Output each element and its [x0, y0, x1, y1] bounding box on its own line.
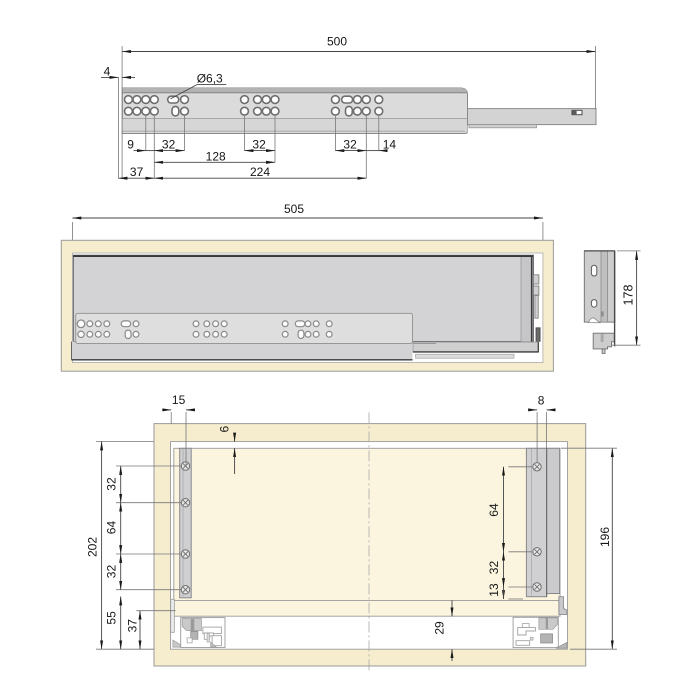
- svg-text:32: 32: [252, 138, 266, 152]
- svg-text:32: 32: [487, 561, 501, 575]
- svg-text:4: 4: [104, 64, 111, 78]
- svg-text:64: 64: [105, 521, 119, 535]
- svg-text:9: 9: [127, 138, 134, 152]
- svg-text:37: 37: [126, 619, 140, 633]
- svg-text:32: 32: [162, 138, 176, 152]
- svg-text:178: 178: [622, 285, 636, 306]
- svg-text:32: 32: [105, 477, 119, 491]
- svg-text:196: 196: [598, 527, 612, 547]
- svg-text:500: 500: [327, 34, 347, 48]
- svg-text:15: 15: [172, 393, 186, 407]
- svg-text:224: 224: [250, 165, 270, 179]
- svg-text:14: 14: [383, 138, 397, 152]
- svg-text:Ø6,3: Ø6,3: [197, 72, 223, 86]
- svg-text:13: 13: [487, 583, 501, 597]
- svg-text:6: 6: [218, 426, 232, 433]
- svg-text:32: 32: [343, 138, 357, 152]
- svg-text:64: 64: [487, 503, 501, 517]
- svg-text:29: 29: [433, 621, 447, 635]
- svg-text:32: 32: [105, 565, 119, 579]
- svg-text:37: 37: [130, 165, 144, 179]
- svg-text:128: 128: [206, 149, 226, 163]
- svg-text:55: 55: [104, 611, 118, 625]
- svg-text:8: 8: [538, 394, 545, 408]
- svg-text:202: 202: [86, 537, 100, 557]
- svg-text:505: 505: [284, 202, 304, 216]
